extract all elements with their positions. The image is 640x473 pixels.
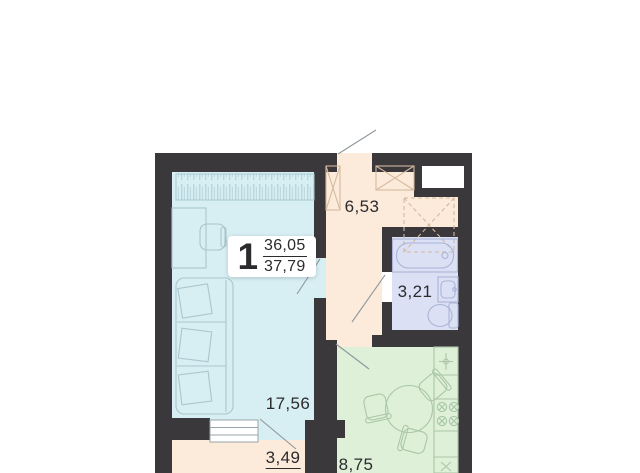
unit-label: 1 36,05 37,79	[228, 236, 316, 277]
wall-top-left	[155, 153, 337, 172]
floor-plan-drawing	[0, 0, 640, 473]
wall-bathroom-bottom	[382, 330, 458, 347]
entrance-door-gap	[337, 153, 372, 172]
wall-bathroom-left-lower	[382, 302, 392, 330]
area-label-kitchen: 8,75	[339, 455, 374, 473]
wardrobe-hatch-band	[176, 174, 314, 200]
area-label-bathroom: 3,21	[398, 282, 433, 302]
wall-bathroom-left-upper	[382, 237, 392, 272]
area-label-balcony: 3,49	[266, 448, 301, 468]
leader-entrance-door	[338, 130, 376, 154]
floor-plan: 1 36,05 37,79 6,53 3,21 17,56 8,75 3,49	[0, 0, 640, 473]
unit-area-total: 37,79	[264, 257, 306, 276]
wall-kitchen-left-pier	[337, 420, 345, 438]
wall-balcony-top	[155, 418, 210, 440]
balcony-window	[210, 420, 258, 442]
unit-areas: 36,05 37,79	[263, 237, 307, 276]
area-label-hallway: 6,53	[345, 197, 380, 217]
unit-number: 1	[237, 238, 258, 275]
wall-kitchen-top-piece	[372, 335, 382, 347]
wall-living-hall-lower	[314, 298, 326, 347]
unit-area-living: 36,05	[263, 237, 307, 257]
area-label-balcony-value: 3,49	[266, 448, 301, 469]
wall-balcony-right	[305, 420, 322, 473]
niche	[422, 166, 464, 188]
wall-right	[458, 153, 472, 473]
room-living	[172, 172, 314, 420]
area-label-living-room: 17,56	[266, 394, 311, 414]
